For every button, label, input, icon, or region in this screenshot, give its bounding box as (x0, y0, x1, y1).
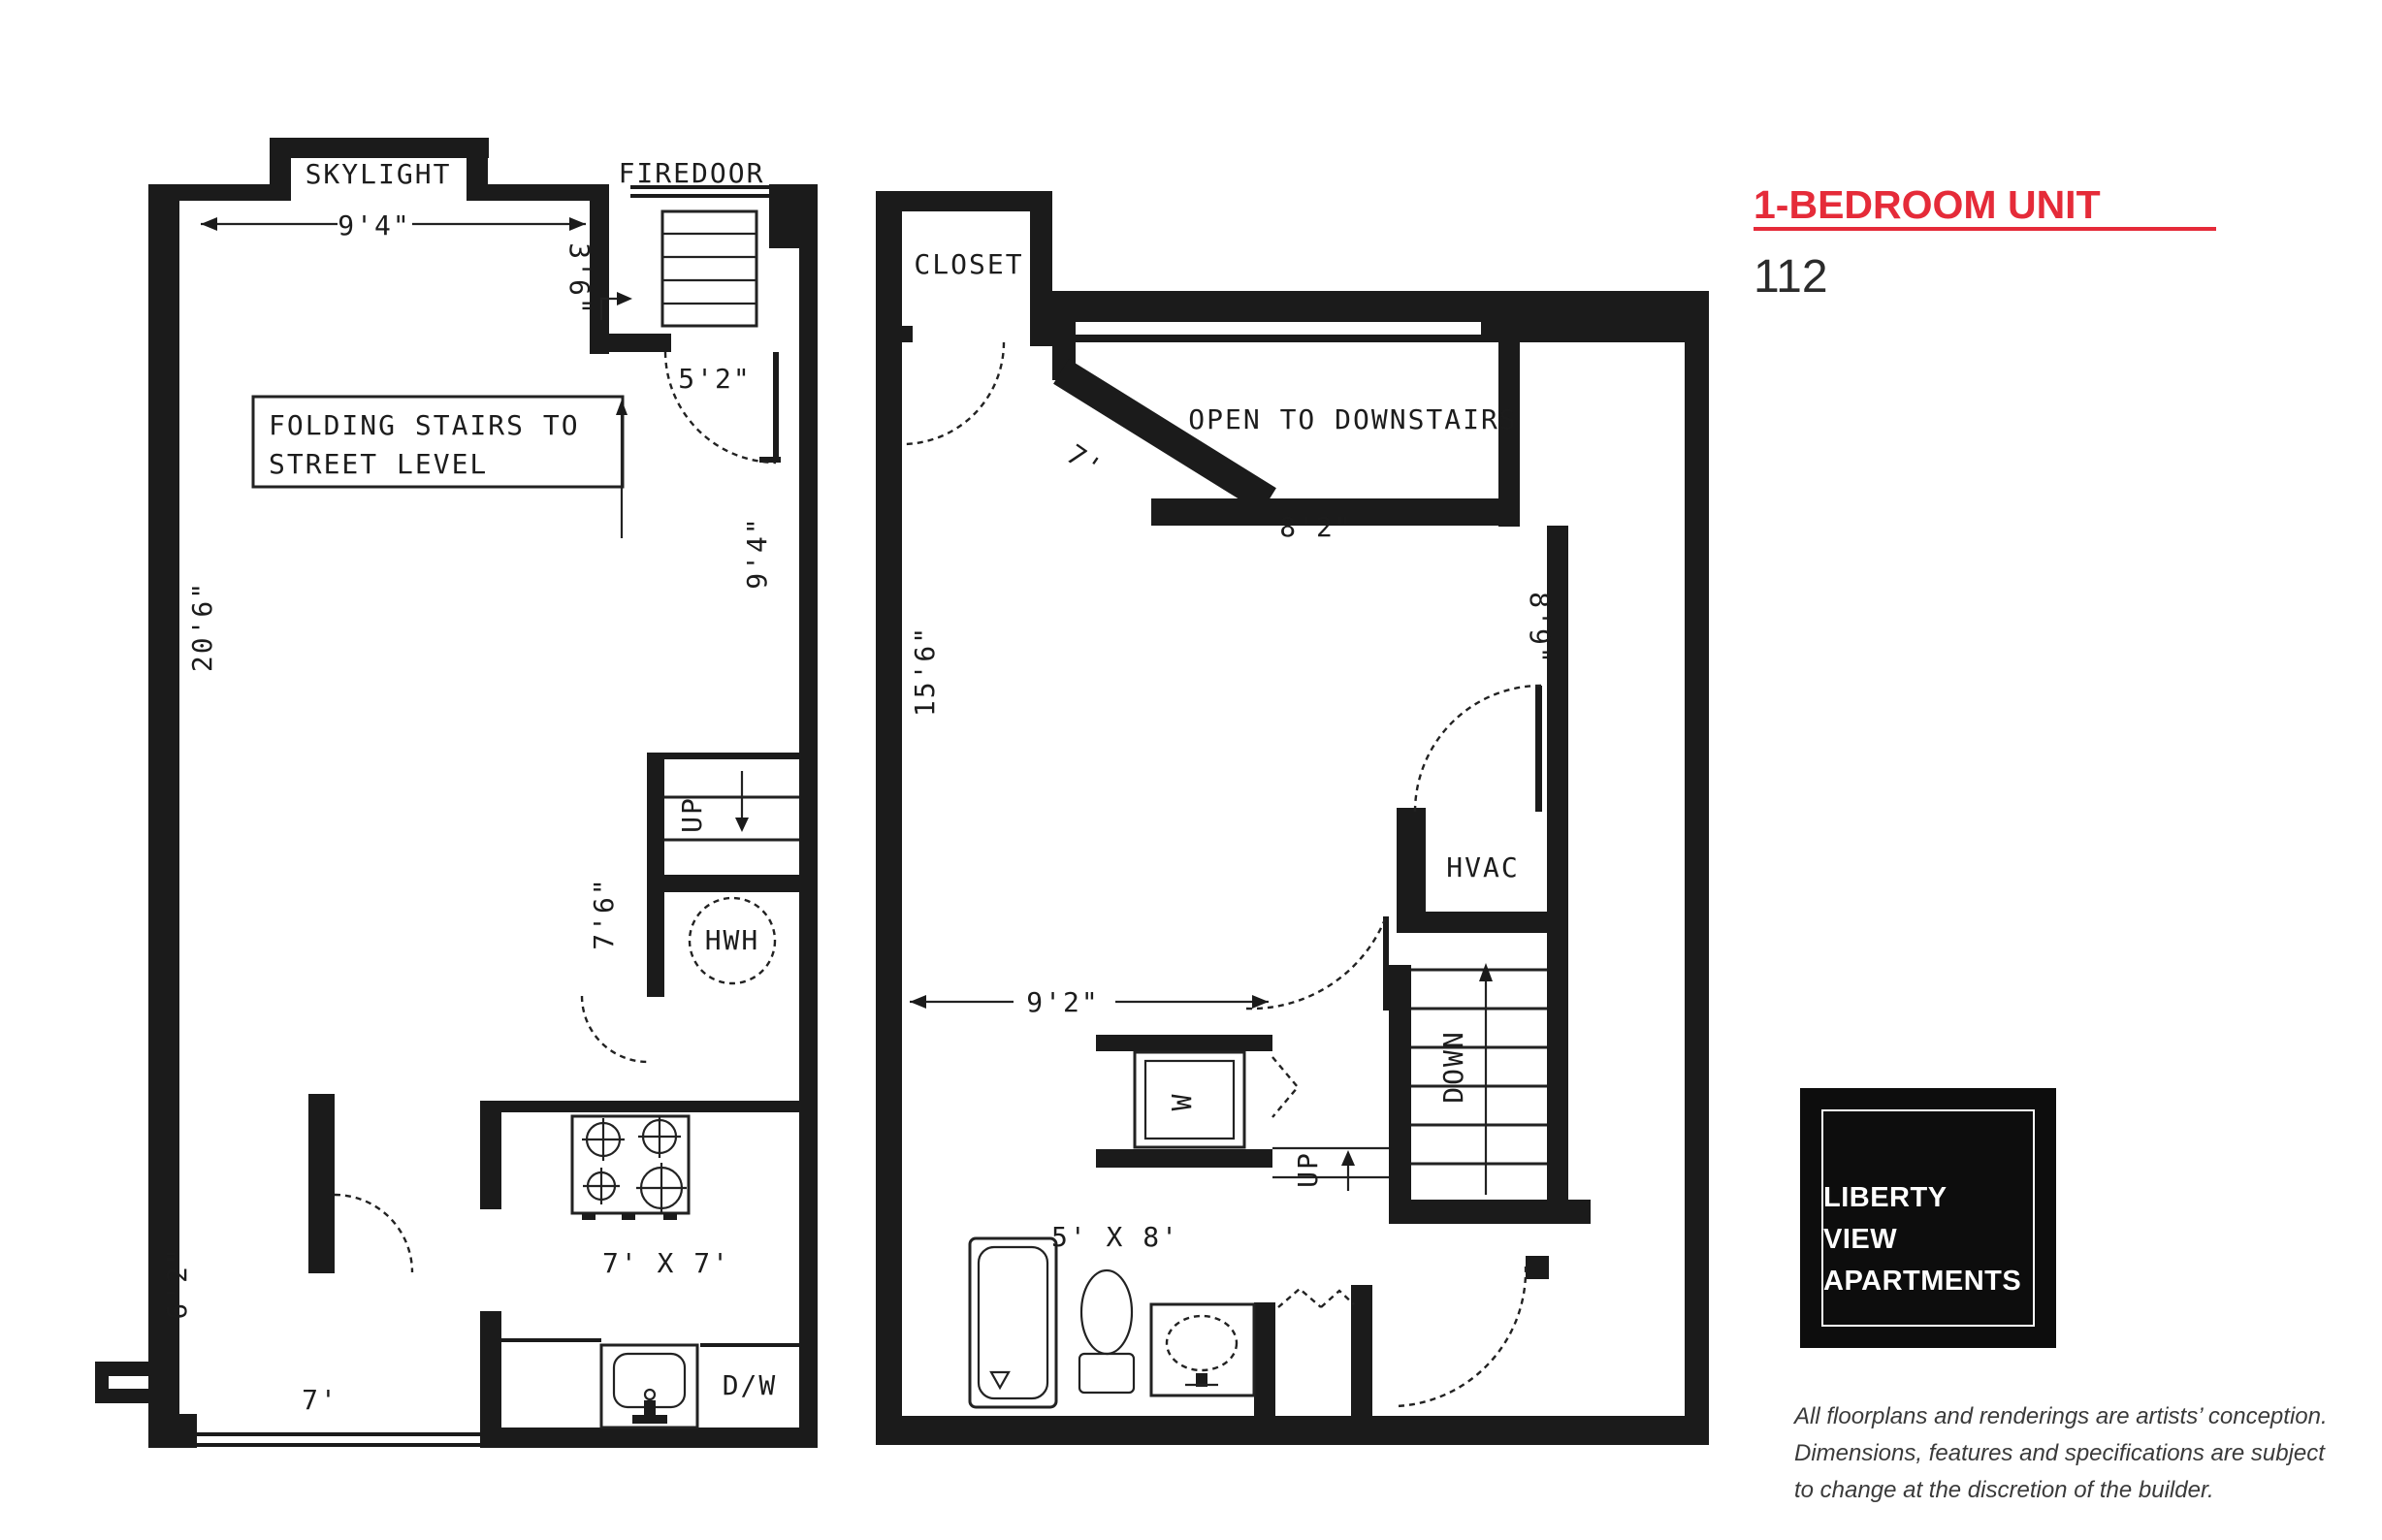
logo-line2: VIEW (1823, 1219, 1903, 1261)
water-heater-label: HWH (705, 924, 760, 956)
disclaimer: All floorplans and renderings are artist… (1794, 1398, 2366, 1509)
open-width-dim: 8'2" (1279, 511, 1352, 543)
angled-wall-dim: 7' (1061, 438, 1110, 486)
right-wall-dim: 9'4" (741, 516, 773, 589)
up-label: UP (676, 796, 708, 833)
disclaimer-line2: Dimensions, features and specifications … (1794, 1435, 2366, 1472)
turn-arrow (617, 292, 632, 305)
logo-line1: LIBERTY (1823, 1177, 1953, 1219)
logo-text: LIBERTY VIEW APARTMENTS (1823, 1177, 2027, 1302)
liberty-view-logo: LIBERTY VIEW APARTMENTS (1800, 1088, 2056, 1348)
hvac-door (1415, 686, 1542, 812)
window-wall (170, 1432, 482, 1436)
closet-depth-dim: 3'6" (563, 242, 595, 315)
dishwasher-label: D/W (723, 1369, 778, 1401)
skylight (270, 138, 489, 158)
open-to-downstairs-label: OPEN TO DOWNSTAIRS (1188, 403, 1517, 435)
bottom-width-dim: 7' (302, 1384, 338, 1416)
plan-lower-walls (876, 191, 1709, 1445)
down-stairs (1411, 963, 1547, 1195)
bathtub (970, 1238, 1056, 1407)
firedoor-label: FIREDOOR (619, 157, 765, 189)
entry-door-dim: 5'2" (678, 363, 751, 395)
bifold-door (1272, 1057, 1298, 1117)
kitchen-door-arc (335, 1195, 412, 1272)
plan-upper-labels: SKYLIGHT 9'4" FIREDOOR 5'2" FOLDING STAI… (161, 157, 777, 1416)
closet-door-arc (902, 342, 1004, 444)
up-landing (1272, 1148, 1389, 1191)
bedroom-entry-arc (1397, 1267, 1526, 1406)
skylight-label: SKYLIGHT (306, 158, 452, 190)
washer (1135, 1052, 1298, 1147)
plan-lower-labels: CLOSET OPEN TO DOWNSTAIRS 8'2" 7' 15'6" … (909, 248, 1556, 1253)
disclaimer-line1: All floorplans and renderings are artist… (1794, 1398, 2366, 1435)
disclaimer-line3: to change at the discretion of the build… (1794, 1472, 2366, 1509)
plan-lower (876, 191, 1709, 1445)
down-arrow (735, 818, 749, 832)
up-label: UP (1292, 1151, 1324, 1188)
alcove-height-dim: 6'2" (161, 1246, 193, 1319)
fire-stairs (601, 211, 756, 326)
floorplan-page: SKYLIGHT 9'4" FIREDOOR 5'2" FOLDING STAI… (0, 0, 2382, 1540)
stove (572, 1115, 689, 1220)
stair-note-line1: FOLDING STAIRS TO (269, 409, 580, 441)
up-arrow (1341, 1150, 1355, 1166)
bedroom-door (1246, 916, 1389, 1011)
washer-label: W (1166, 1093, 1198, 1111)
room-length-dim: 20'6" (186, 581, 218, 672)
logo-line3: APARTMENTS (1823, 1261, 2027, 1302)
bath-size-label: 5' X 8' (1051, 1221, 1179, 1253)
closet-door-arc (582, 996, 648, 1062)
skylight-width-dim: 9'4" (338, 209, 410, 241)
toilet (1079, 1270, 1134, 1393)
unit-number: 112 (1754, 250, 1828, 304)
window-niche (1074, 322, 1481, 335)
up-arrow (1479, 963, 1493, 981)
room-width-dim: 9'2" (1026, 986, 1099, 1018)
hvac-label: HVAC (1446, 851, 1519, 883)
kitchen-size-label: 7' X 7' (602, 1247, 730, 1279)
closet-label: CLOSET (914, 248, 1023, 280)
title-underline (1754, 227, 2216, 231)
room-length-dim: 15'6" (909, 626, 941, 717)
page-title: 1-BEDROOM UNIT (1754, 182, 2101, 228)
down-label: DOWN (1437, 1030, 1469, 1103)
nook-depth-dim: 8'9" (1524, 592, 1556, 664)
hall-width-dim: 7'6" (588, 877, 620, 949)
hall-closet-bifold (1278, 1289, 1354, 1307)
vanity-sink (1151, 1304, 1254, 1396)
drain-icon (991, 1372, 1009, 1388)
stair-note-line2: STREET LEVEL (269, 448, 488, 480)
